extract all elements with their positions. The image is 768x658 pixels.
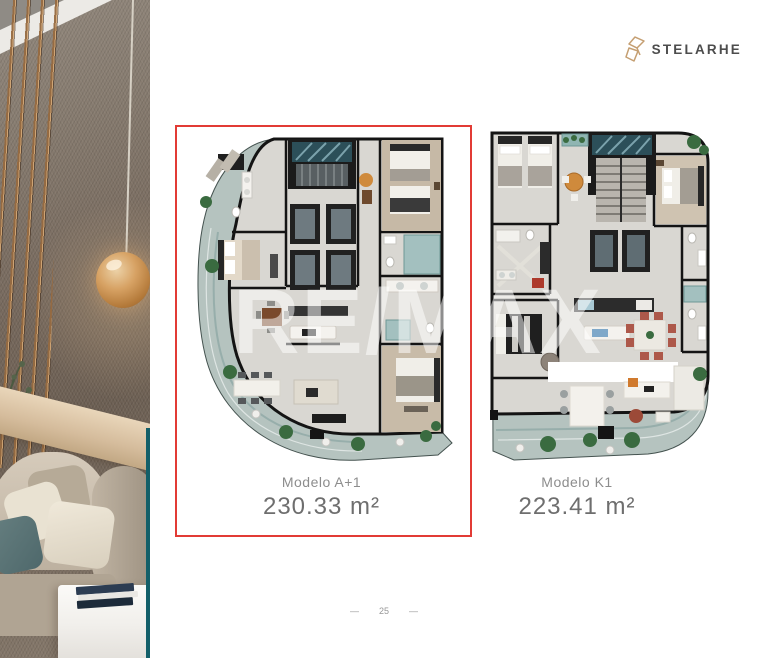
pillow-white-2 — [42, 500, 116, 571]
teal-accent-strip — [146, 428, 150, 658]
bedroom-right — [656, 156, 706, 224]
wall-stub — [490, 410, 498, 420]
footer-dash-right: — — [409, 606, 418, 616]
interior-photo — [0, 0, 150, 658]
plan-a1-caption: Modelo A+1 230.33 m² — [175, 474, 468, 521]
white-counter-band — [548, 362, 678, 382]
floor-plan-k1 — [486, 130, 714, 468]
brand-name: STELARHE — [652, 42, 742, 57]
plan-k1-caption: Modelo K1 223.41 m² — [466, 474, 688, 521]
brochure-page: STELARHE — [0, 0, 768, 658]
door-mark — [598, 426, 614, 439]
stelarhe-logo-icon — [624, 36, 646, 63]
plan-a1-area-label: 230.33 m² — [263, 493, 380, 521]
plan-a1-model-label: Modelo A+1 — [282, 474, 361, 490]
plan-k1-model-label: Modelo K1 — [541, 474, 612, 490]
plan-k1-area-label: 223.41 m² — [518, 493, 635, 521]
brand-logo: STELARHE — [624, 36, 742, 63]
pendant-lamp — [96, 252, 150, 308]
page-footer: — 25 — — [0, 606, 768, 616]
page-number: 25 — [379, 606, 389, 616]
footer-dash-left: — — [350, 606, 359, 616]
stair-core — [588, 133, 656, 222]
